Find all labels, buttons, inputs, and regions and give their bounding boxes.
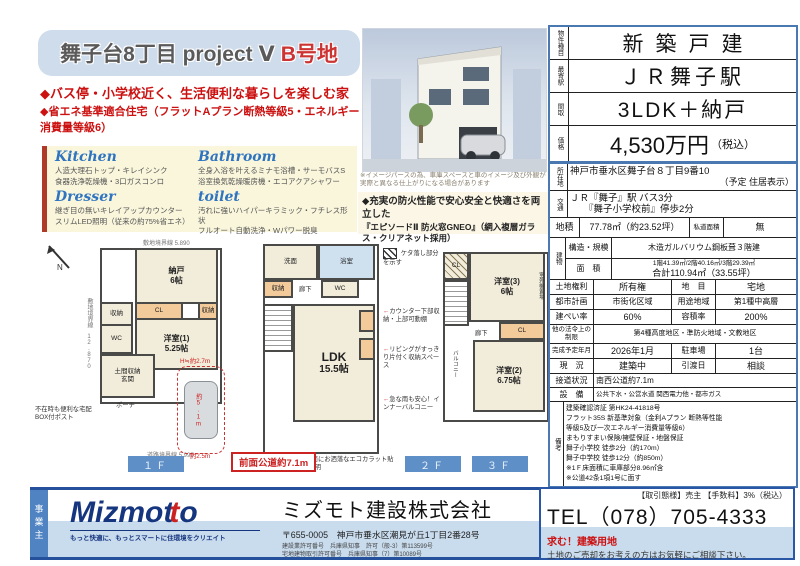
closet1-3f: CL [443, 252, 469, 280]
counter-storage-cell [359, 310, 375, 332]
owner-tab: 事業主 [30, 490, 48, 557]
contact-box: 【取引態様】売主 【手数料】3%（税込） TEL（078）705-4333 求む… [539, 487, 795, 560]
spec-detail-table: 所在地 神戸市垂水区舞子台８丁目9番10 （予定 住居表示） 交通 ＪＲ『舞子』… [548, 162, 798, 488]
row-land-area: 地積 77.78㎡（約23.52坪） 私道面積 無 [550, 218, 796, 238]
row-completion: 完成予定年月 2026年1月 駐車場 1台 [550, 344, 796, 359]
row-utility: 設 備 公共下水・公営水道 関西電力他・都市ガス [550, 388, 796, 402]
note-balcony: ←急な雨も安心！インナーバルコニー [383, 396, 441, 412]
render-caption: ※イメージパースの為、車庫スペースと車のイメージ及び外観が実際と異なる仕上がりに… [360, 172, 546, 188]
label-price: 価格 [550, 126, 569, 161]
row-road: 接道状況 南西公道約7.1m [550, 374, 796, 388]
company-licenses: 建設業許可番号 兵庫県知事 許可（般-3）第113599号 宅地建物取引許可番号… [282, 543, 535, 560]
front-road-note: 前面公道約7.1m [231, 452, 316, 472]
boundary-label-left: 敷地境界線 12.870 [85, 298, 94, 370]
spec-summary-table: 物件種目 新築戸建 最寄駅 ＪＲ舞子駅 間取 3LDK＋納戸 価格 4,530万… [548, 25, 798, 163]
deal-terms: 【取引態様】売主 【手数料】3%（税込） [547, 490, 787, 501]
feature-dresser-heading: Dresser [55, 190, 198, 205]
row-land-right: 土地権利 所有権 地 目 宅地 [550, 280, 796, 295]
feature-toilet-heading: toilet [198, 190, 353, 205]
row-notes: 備考 建築確認済証 第HK24-41818号 フラット35S 新基準対象（金利A… [550, 402, 796, 486]
hall-3f: 廊下 [475, 330, 488, 338]
fire-window-note: ◆充実の防火性能で安心安全と快適さを両立した 『エピソードⅡ 防火窓GNEO』（… [358, 192, 548, 234]
row-price: 価格 4,530万円 （税込） [550, 126, 796, 161]
storage-2f: 収納 [263, 280, 293, 298]
flyer-page: 舞子台8丁目 project Ⅴ B号地 ◆バス停・小学校近く、生活便利な暮らし… [0, 0, 800, 566]
floorplan-2f: 洗面 浴室 収納 WC 廊下 LDK 15.5帖 [263, 244, 379, 454]
feature-bathroom-line1: 全身入浴を叶えるミナモ浴槽・サーモバスS [198, 166, 353, 175]
feature-kitchen-line2: 食器洗浄乾燥機・3口ガスコンロ [55, 177, 198, 186]
stairs-3f [443, 280, 469, 326]
plan-legend: ケタ落し部分を示す [383, 248, 443, 267]
floor-tag-1f: １Ｆ [128, 456, 184, 472]
entrance-1f: 土間収納 玄関 [100, 354, 155, 398]
label-property-type: 物件種目 [550, 27, 569, 59]
room2-3f: 洋室(2) 6.75帖 [473, 340, 545, 412]
company-logo: Mizmotto [70, 498, 280, 528]
room-storage-1f: 納戸 6帖 [135, 248, 218, 304]
feature-kitchen-heading: Kitchen [55, 150, 198, 165]
row-ratios: 建ぺい率 60% 容積率 200% [550, 310, 796, 325]
feature-kitchen-line1: 人造大理石トップ・キレイシンク [55, 166, 198, 175]
row-building: 建物 構造・規模 木造ガルバリウム鋼板葺３階建 面 積 1階41.39㎡/2階4… [550, 238, 796, 280]
equipment-feature-box: Kitchen 人造大理石トップ・キレイシンク 食器洗浄乾燥機・3口ガスコンロ … [42, 146, 357, 232]
bathroom-2f: 浴室 [318, 244, 375, 280]
feature-dresser: Dresser 継ぎ目の無いキレイアップカウンター スリムLED照明（従来の約7… [55, 190, 198, 230]
logo-zone: Mizmotto もっと快適に、もっとスマートに住環境をクリエイト [48, 490, 280, 557]
row-city-plan: 都市計画 市街化区域 用途地域 第1種中高層 [550, 295, 796, 310]
company-tagline: もっと快適に、もっとスマートに住環境をクリエイト [70, 530, 260, 542]
label-layout: 間取 [550, 93, 569, 125]
value-station: ＪＲ舞子駅 [569, 60, 796, 92]
living-storage-cell [359, 338, 375, 360]
closet2-3f: CL [499, 322, 545, 340]
room3-3f: 洋室(3) 6帖 [469, 252, 545, 322]
value-layout: 3LDK＋納戸 [569, 93, 796, 125]
company-info: ミズモト建設株式会社 〒655-0005 神戸市垂水区潮見が丘1丁目2番28号 … [280, 490, 535, 557]
boundary-label-top: 敷地境界線 5.890 [143, 238, 190, 247]
feature-kitchen: Kitchen 人造大理石トップ・キレイシンク 食器洗浄乾燥機・3口ガスコンロ [55, 150, 198, 190]
row-access: 交通 ＪＲ『舞子』駅 バス3分 『舞子小学校前』停歩2分 [550, 191, 796, 218]
floor-tag-3f: ３Ｆ [472, 456, 528, 472]
feature-dresser-line1: 継ぎ目の無いキレイアップカウンター [55, 206, 198, 215]
company-name: ミズモト建設株式会社 [282, 494, 535, 523]
row-layout: 間取 3LDK＋納戸 [550, 93, 796, 126]
porch-1f: ポーチ [116, 402, 135, 410]
catch-line-1: ◆バス停・小学校近く、生活便利な暮らしを楽しむ家 [40, 84, 360, 104]
row-property-type: 物件種目 新築戸建 [550, 27, 796, 60]
note-storage: ←リビングがすっきり片付く収納スペース [383, 346, 441, 370]
value-property-type: 新築戸建 [569, 27, 796, 59]
catch-line-2: ◆省エネ基準適合住宅（フラットAプラン断熱等級5・エネルギー消費量等級6） [40, 104, 360, 137]
fire-note-line1: ◆充実の防火性能で安心安全と快適さを両立した [362, 195, 544, 222]
compass-icon: N [41, 240, 75, 274]
floor-tag-2f: ２Ｆ [405, 456, 461, 472]
company-address: 〒655-0005 神戸市垂水区潮見が丘1丁目2番28号 [282, 528, 535, 541]
catch-copy: ◆バス停・小学校近く、生活便利な暮らしを楽しむ家 ◆省エネ基準適合住宅（フラット… [40, 84, 360, 137]
title-badge: 舞子台8丁目 project Ⅴ B号地 [38, 30, 360, 76]
feature-toilet-line1: 汚れに強いハイパーキラミック・フチレス形状 [198, 206, 353, 225]
feature-toilet-line2: フルオート自動洗浄・Wパワー脱臭 [198, 226, 353, 235]
floorplan-3f: CL 洋室(3) 6帖 室外機置場 廊下 CL 洋室(2) 6.75帖 バルコニ… [443, 252, 549, 422]
label-station: 最寄駅 [550, 60, 569, 92]
row-station: 最寄駅 ＪＲ舞子駅 [550, 60, 796, 93]
feature-toilet: toilet 汚れに強いハイパーキラミック・フチレス形状 フルオート自動洗浄・W… [198, 190, 353, 230]
row-other-law: 他の法令上の制限 第4種高度地区・準防火地域・文教地区 [550, 325, 796, 344]
feature-bathroom-line2: 浴室換気乾燥暖房機・エコアクアシャワー [198, 177, 353, 186]
exterior-render-image [362, 28, 547, 172]
note-counter: ←カウンター下部収納・上部可動棚 [383, 308, 441, 324]
stairs-2f [263, 304, 293, 352]
floorplan-section: N 敷地境界線 5.890 敷地境界線 12.870 道路境界線 5.990 納… [35, 238, 547, 480]
value-price: 4,530万円 （税込） [569, 126, 796, 161]
feature-dresser-line2: スリムLED照明（従来の約75%省エネ） [55, 217, 198, 226]
phone-number: TEL（078）705-4333 [547, 501, 787, 531]
postbox-note: 不在時も便利な宅配BOX付ポスト [35, 406, 97, 422]
row-address: 所在地 神戸市垂水区舞子台８丁目9番10 （予定 住居表示） [550, 164, 796, 191]
feature-bathroom-heading: Bathroom [198, 150, 353, 165]
wc-2f: WC [321, 280, 359, 298]
hatch-legend-icon [383, 248, 397, 259]
storage-1f: 収納 [100, 302, 133, 326]
land-recruit-sub: 土地のご売却をお考えの方はお気軽にご相談下さい。 [547, 549, 787, 561]
company-footer: 事業主 Mizmotto もっと快適に、もっとスマートに住環境をクリエイト ミズ… [30, 487, 795, 560]
balcony-3f: バルコニー [451, 350, 458, 378]
title-main: 舞子台8丁目 project Ⅴ [60, 38, 275, 68]
feature-bathroom: Bathroom 全身入浴を叶えるミナモ浴槽・サーモバスS 浴室換気乾燥暖房機・… [198, 150, 353, 190]
ac-unit-3f: 室外機置場 [537, 272, 544, 300]
title-lot-badge: B号地 [281, 38, 338, 68]
washroom-2f: 洗面 [263, 244, 318, 280]
car-space-1f: H≒約2.7m 約5.1m 約2.5m [177, 366, 225, 454]
row-status: 現 況 建築中 引渡日 相談 [550, 359, 796, 374]
land-recruit-heading: 求む！建築用地 [547, 533, 787, 548]
wc-1f: WC [100, 324, 133, 354]
hall-2f: 廊下 [299, 286, 312, 294]
svg-text:N: N [57, 263, 63, 272]
house-illustration [363, 29, 546, 171]
